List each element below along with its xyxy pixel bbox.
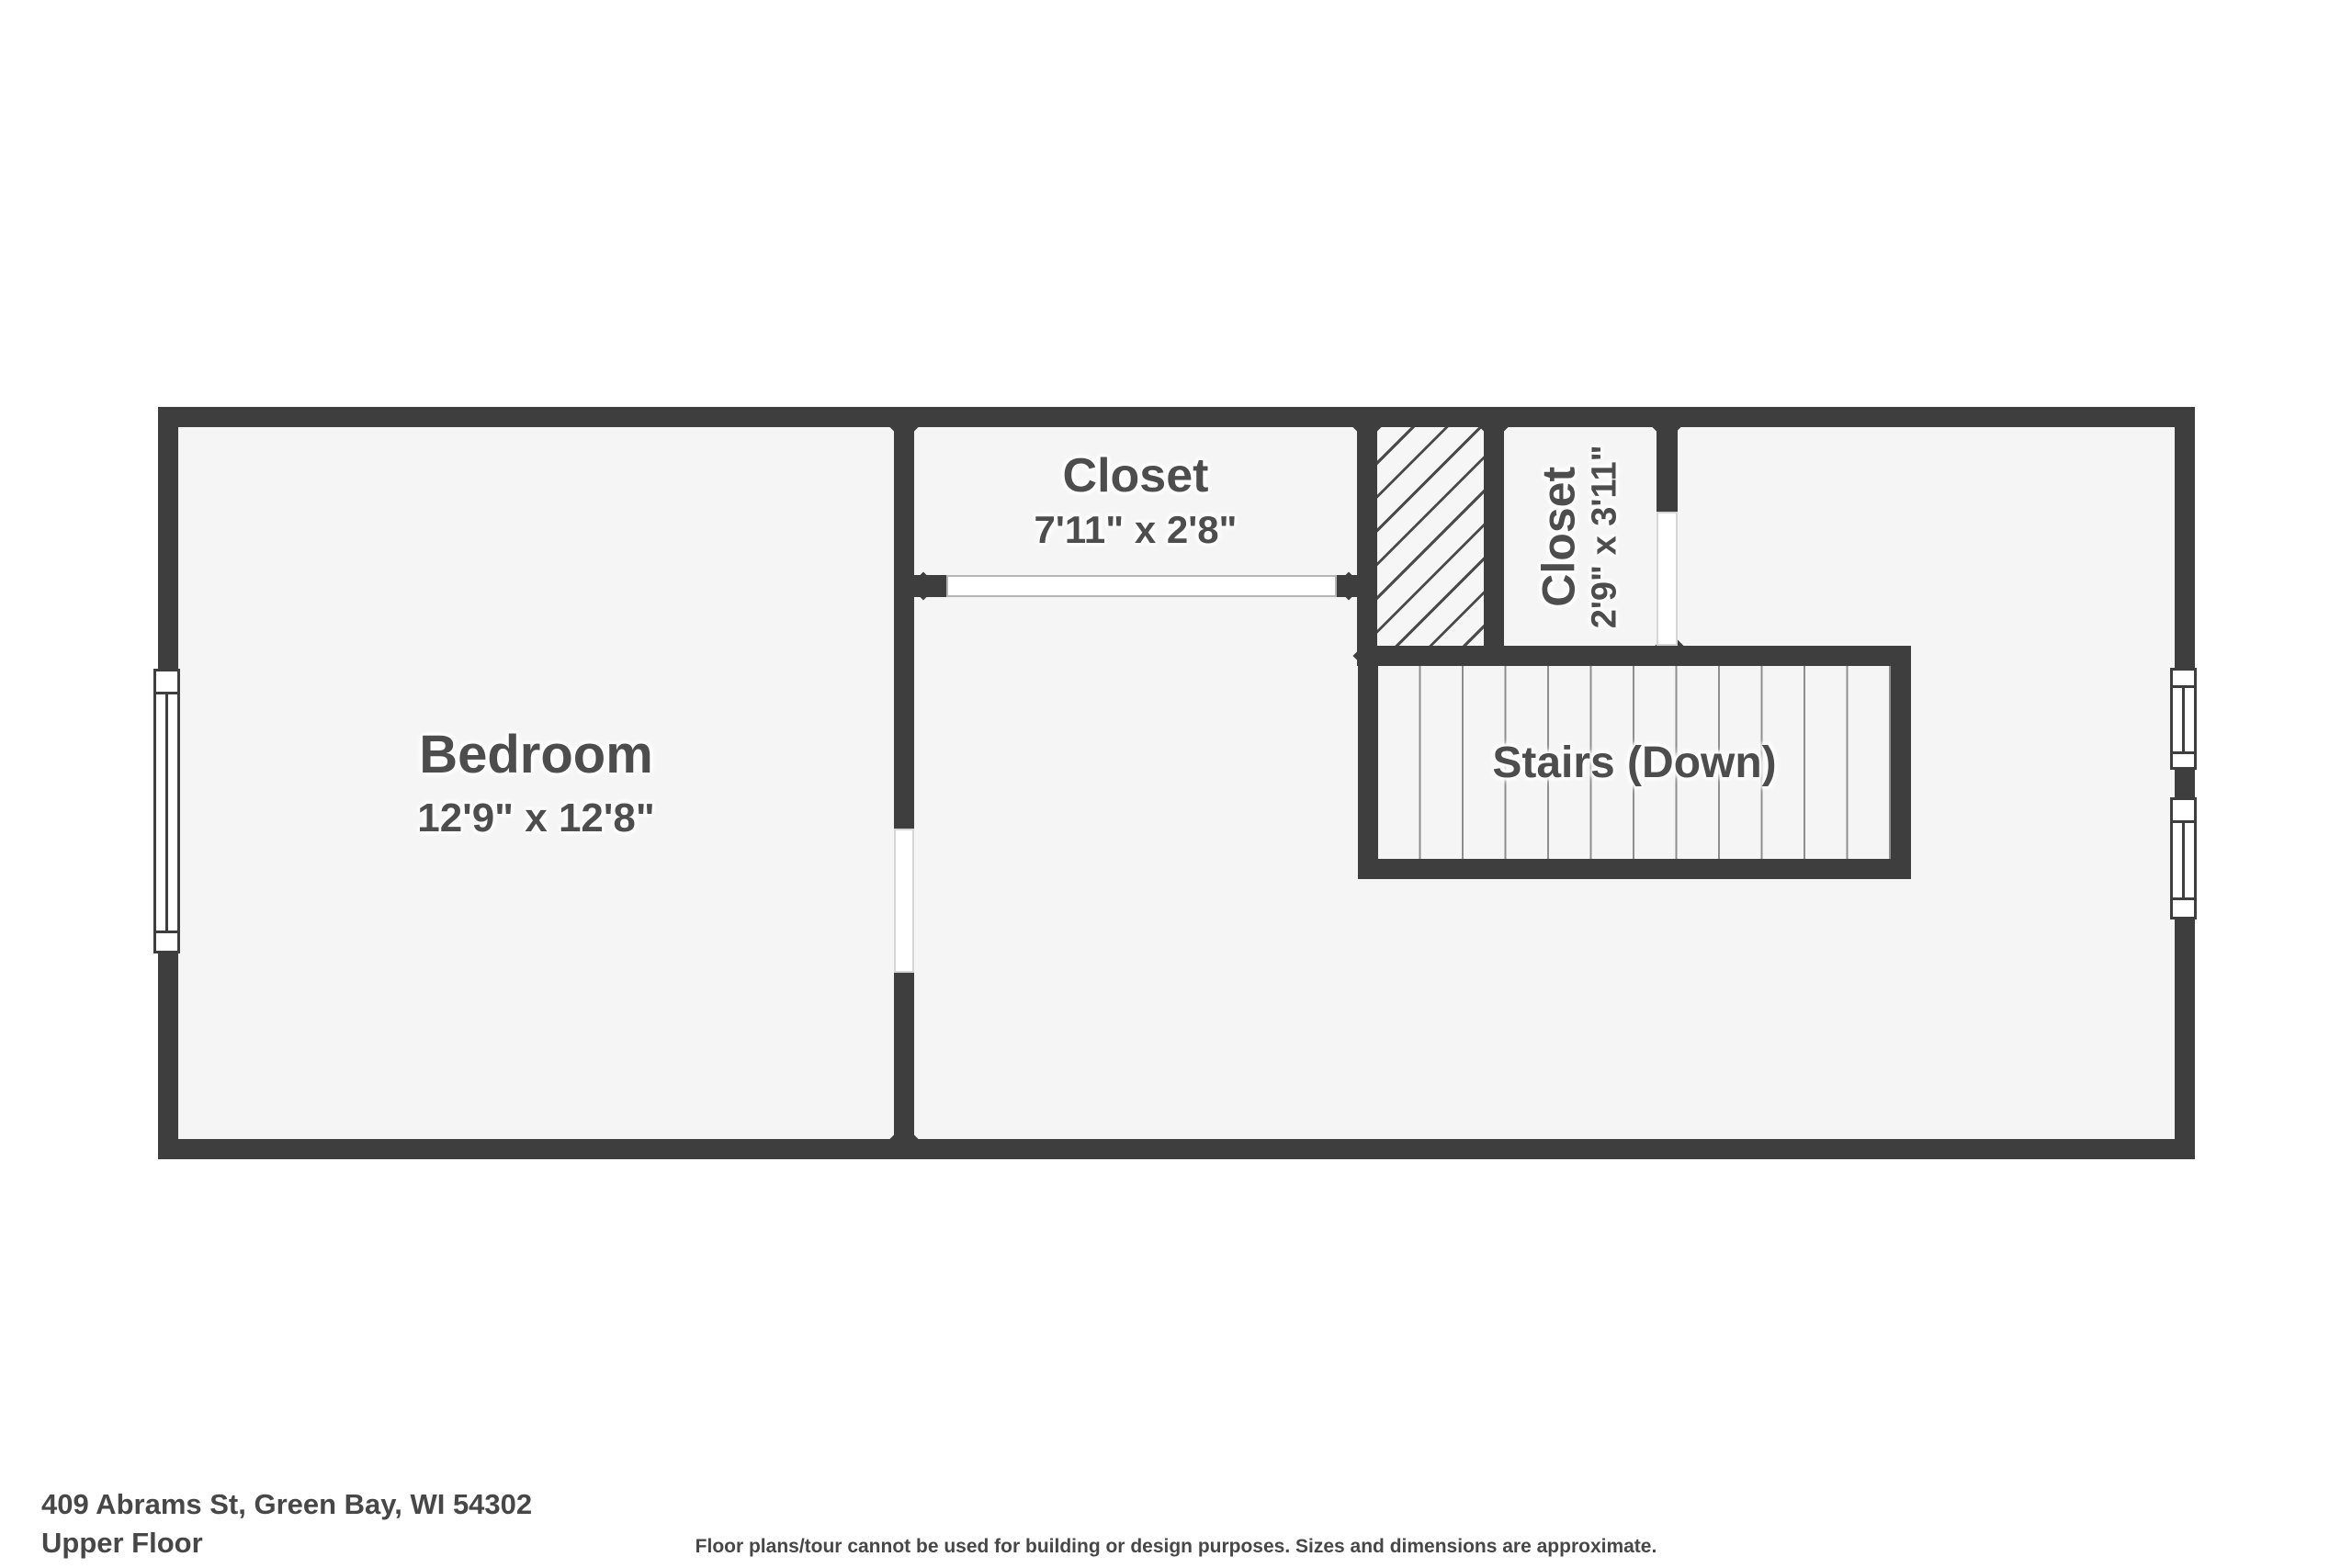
floor-plan-canvas: Bedroom 12'9" x 12'8" Closet 7'11" x 2'8… <box>0 0 2352 1568</box>
wall-outer-bottom <box>158 1139 2195 1159</box>
wall-stairs-top <box>1358 646 1911 666</box>
hatched-area <box>1377 427 1484 648</box>
closet-sliding-door <box>946 575 1337 597</box>
closet-side-door-opening <box>1657 512 1678 646</box>
wall-hatch-right <box>1484 427 1504 666</box>
stair-treads <box>1378 666 1891 859</box>
wall-stairs-left <box>1358 646 1378 879</box>
wall-bedroom-right-upper <box>894 427 914 829</box>
address-text: 409 Abrams St, Green Bay, WI 54302 <box>41 1488 532 1521</box>
wall-outer-right <box>2175 407 2195 1159</box>
wall-hatch-left <box>1357 427 1377 666</box>
window-right-lower <box>2170 797 2197 919</box>
window-left <box>153 669 180 953</box>
wall-stairs-right <box>1891 646 1911 879</box>
bedroom-door-opening <box>894 829 914 973</box>
wall-bedroom-right-lower <box>894 973 914 1139</box>
wall-outer-top <box>158 407 2195 427</box>
disclaimer-text: Floor plans/tour cannot be used for buil… <box>0 1536 2352 1558</box>
wall-stairs-bottom <box>1358 859 1911 879</box>
window-right-upper <box>2170 668 2197 770</box>
